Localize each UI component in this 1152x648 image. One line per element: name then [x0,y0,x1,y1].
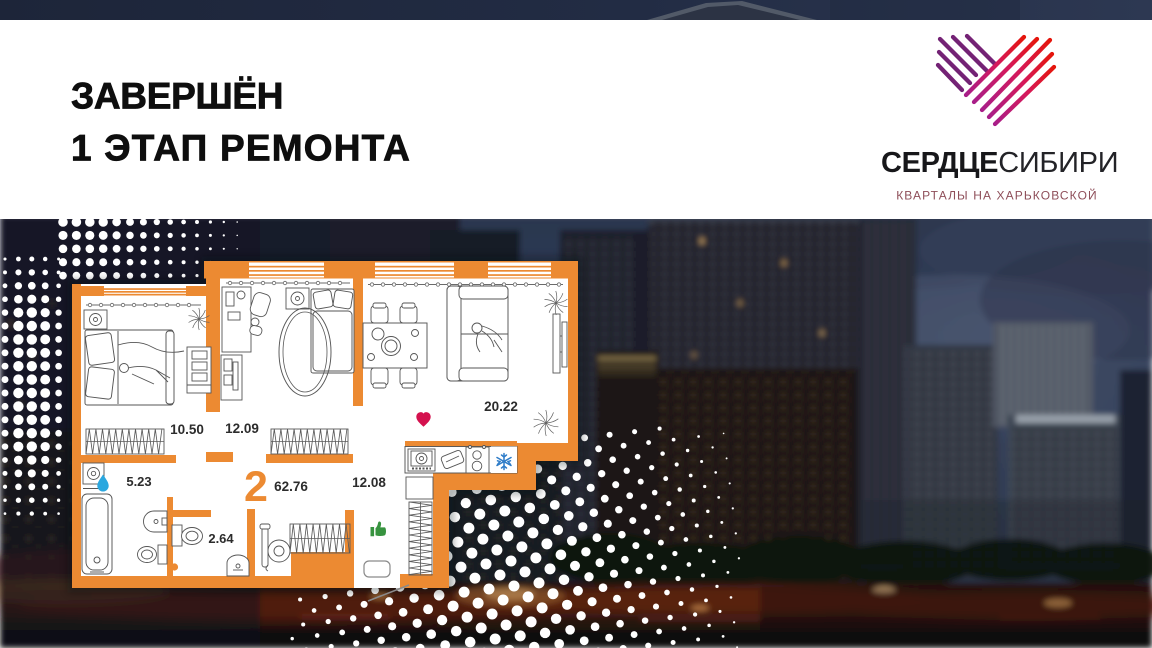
svg-text:20.22: 20.22 [484,399,518,414]
svg-text:2: 2 [244,463,268,511]
svg-text:62.76: 62.76 [274,479,308,494]
svg-text:12.08: 12.08 [352,475,386,490]
svg-text:2.64: 2.64 [208,531,234,546]
svg-text:КВАРТАЛЫ НА ХАРЬКОВСКОЙ: КВАРТАЛЫ НА ХАРЬКОВСКОЙ [896,188,1098,203]
svg-text:10.50: 10.50 [170,422,204,437]
svg-text:5.23: 5.23 [126,474,151,489]
svg-text:12.09: 12.09 [225,421,259,436]
svg-text:1 ЭТАП РЕМОНТА: 1 ЭТАП РЕМОНТА [71,128,411,169]
svg-text:СЕРДЦЕСИБИРИ: СЕРДЦЕСИБИРИ [881,147,1118,179]
svg-text:ЗАВЕРШЁН: ЗАВЕРШЁН [71,76,283,117]
